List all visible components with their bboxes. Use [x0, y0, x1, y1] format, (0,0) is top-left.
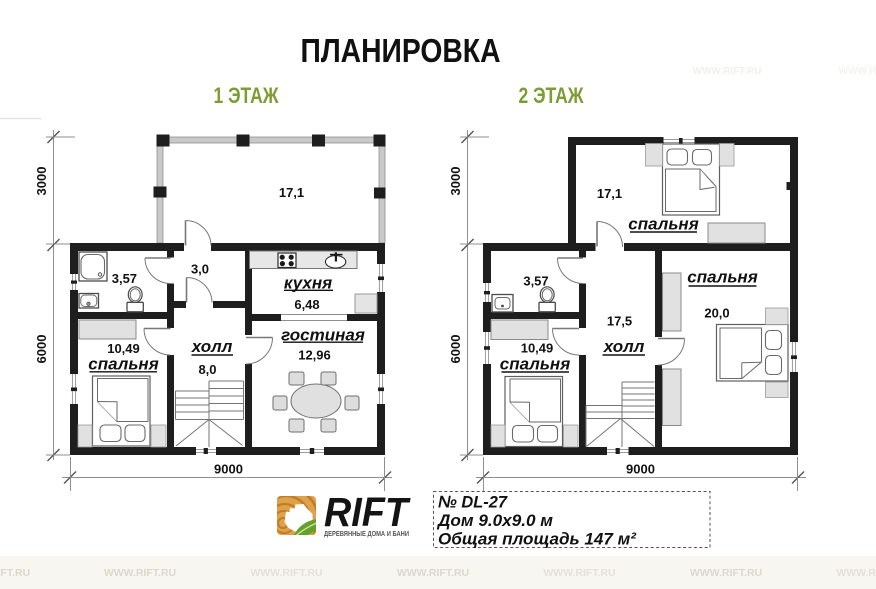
- svg-text:2 ЭТАЖ: 2 ЭТАЖ: [519, 83, 584, 108]
- svg-text:6,48: 6,48: [294, 297, 319, 312]
- svg-text:WWW.RIFT.RU: WWW.RIFT.RU: [836, 567, 876, 579]
- svg-text:RIFT: RIFT: [324, 489, 411, 535]
- svg-text:WWW.RIFT.RU: WWW.RIFT.RU: [839, 66, 876, 77]
- svg-text:3000: 3000: [448, 167, 463, 196]
- svg-text:спальня: спальня: [88, 355, 158, 374]
- svg-text:9000: 9000: [214, 462, 243, 477]
- svg-text:17,1: 17,1: [279, 185, 304, 200]
- svg-text:Общая площадь 147 м²: Общая площадь 147 м²: [438, 530, 637, 549]
- svg-text:WWW.RIFT.RU: WWW.RIFT.RU: [690, 567, 762, 579]
- svg-text:3,0: 3,0: [191, 262, 209, 277]
- svg-text:спальня: спальня: [687, 268, 757, 287]
- svg-text:WWW.RIFT.RU: WWW.RIFT.RU: [104, 567, 176, 579]
- svg-text:WWW.RIFT.RU: WWW.RIFT.RU: [250, 567, 322, 579]
- svg-text:3,57: 3,57: [112, 271, 137, 286]
- svg-text:17,5: 17,5: [607, 314, 632, 329]
- svg-text:8,0: 8,0: [198, 362, 216, 377]
- svg-text:холл: холл: [603, 337, 645, 356]
- svg-text:6000: 6000: [34, 335, 49, 364]
- svg-text:6000: 6000: [448, 335, 463, 364]
- svg-text:WWW.RIFT.RU: WWW.RIFT.RU: [543, 567, 615, 579]
- svg-text:20,0: 20,0: [704, 306, 729, 321]
- svg-text:ПЛАНИРОВКА: ПЛАНИРОВКА: [301, 32, 501, 69]
- svg-text:WWW.RIFT.RU: WWW.RIFT.RU: [0, 567, 30, 579]
- svg-text:3,57: 3,57: [523, 274, 548, 289]
- svg-text:холл: холл: [191, 337, 233, 356]
- svg-text:1 ЭТАЖ: 1 ЭТАЖ: [214, 83, 279, 108]
- svg-text:17,1: 17,1: [597, 186, 622, 201]
- svg-text:спальня: спальня: [628, 215, 698, 234]
- svg-text:12,96: 12,96: [298, 348, 331, 363]
- svg-text:9000: 9000: [626, 462, 655, 477]
- svg-text:№ DL-27: № DL-27: [438, 493, 508, 512]
- svg-text:ДЕРЕВЯННЫЕ ДОМА И БАНИ: ДЕРЕВЯННЫЕ ДОМА И БАНИ: [324, 531, 409, 538]
- svg-text:спальня: спальня: [500, 355, 570, 374]
- svg-text:WWW.RIFT.RU: WWW.RIFT.RU: [693, 66, 762, 77]
- svg-text:3000: 3000: [34, 167, 49, 196]
- svg-text:Дом 9.0х9.0 м: Дом 9.0х9.0 м: [436, 511, 553, 530]
- svg-text:10,49: 10,49: [521, 341, 554, 356]
- svg-text:WWW.RIFT.RU: WWW.RIFT.RU: [397, 567, 469, 579]
